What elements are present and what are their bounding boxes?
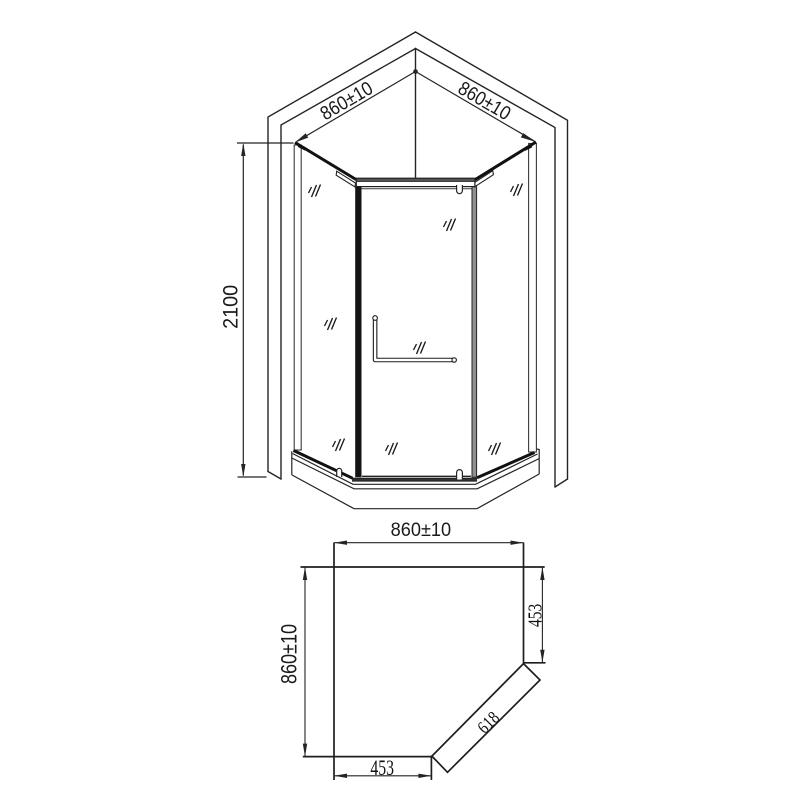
svg-text:453: 453 xyxy=(370,755,394,780)
svg-text:860±10: 860±10 xyxy=(391,519,452,541)
svg-text:453: 453 xyxy=(525,604,546,627)
svg-text:2100: 2100 xyxy=(220,285,243,329)
svg-text:860±10: 860±10 xyxy=(277,624,302,684)
